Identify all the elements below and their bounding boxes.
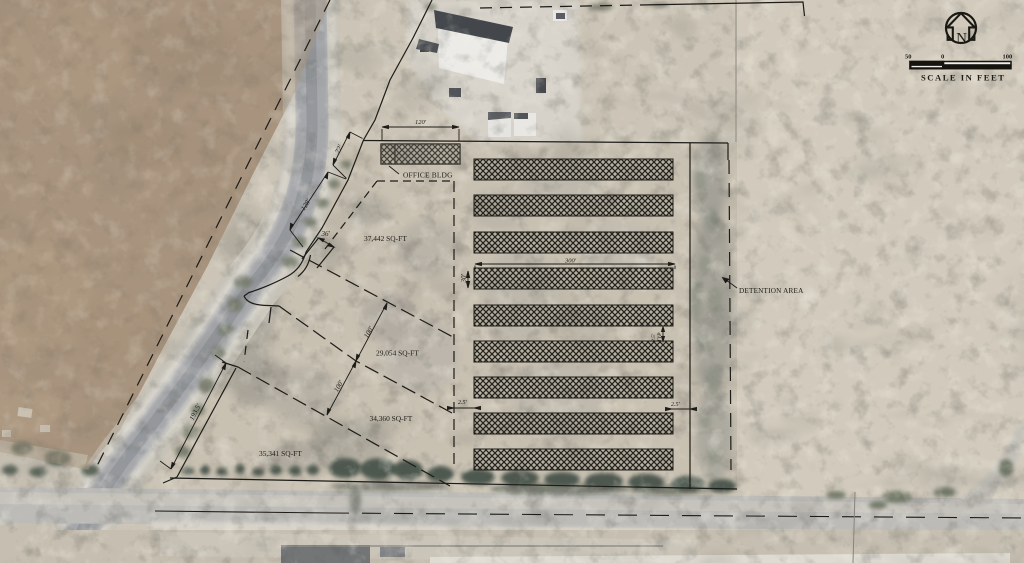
svg-text:SCALE IN FEET: SCALE IN FEET [921, 73, 1005, 83]
svg-text:37,442 SQ-FT: 37,442 SQ-FT [364, 234, 407, 243]
svg-text:300': 300' [564, 258, 577, 265]
svg-text:2.5': 2.5' [671, 402, 681, 408]
svg-text:DETENTION AREA: DETENTION AREA [739, 287, 804, 295]
svg-text:120': 120' [415, 119, 427, 126]
svg-text:35,341 SQ-FT: 35,341 SQ-FT [259, 449, 302, 458]
svg-text:0: 0 [941, 54, 944, 61]
svg-text:29,054 SQ-FT: 29,054 SQ-FT [376, 349, 419, 358]
svg-text:2.5': 2.5' [458, 400, 468, 406]
svg-text:50: 50 [905, 54, 912, 61]
svg-text:TYP: TYP [657, 332, 663, 342]
svg-text:OFFICE BLDG: OFFICE BLDG [403, 171, 453, 180]
svg-text:100: 100 [1003, 54, 1013, 61]
svg-text:36': 36' [321, 230, 331, 238]
svg-text:30': 30' [460, 274, 468, 284]
svg-text:34,360 SQ-FT: 34,360 SQ-FT [370, 414, 413, 423]
svg-text:N: N [956, 31, 967, 47]
